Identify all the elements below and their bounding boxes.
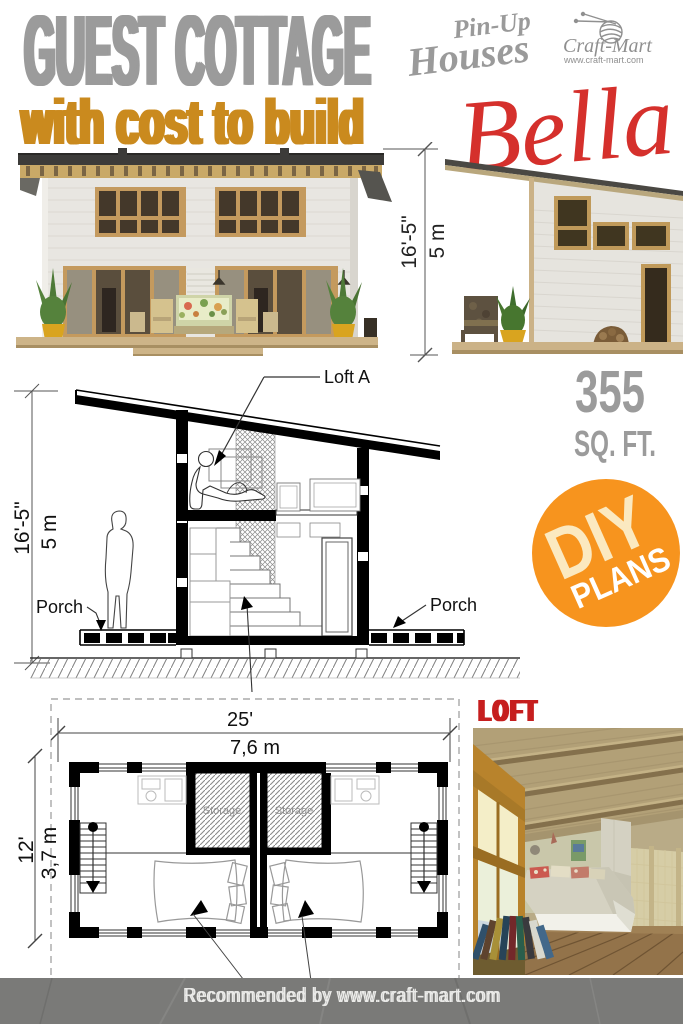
svg-text:355: 355 xyxy=(575,359,645,425)
svg-text:12': 12' xyxy=(15,836,38,863)
svg-text:16'-5": 16'-5" xyxy=(11,501,34,555)
svg-text:Storage: Storage xyxy=(275,805,314,817)
svg-text:3,7 m: 3,7 m xyxy=(38,827,61,880)
svg-text:Craft-Mart: Craft-Mart xyxy=(563,35,652,57)
svg-text:Porch: Porch xyxy=(36,597,83,617)
svg-text:Loft A: Loft A xyxy=(324,367,370,387)
svg-text:16'-5": 16'-5" xyxy=(398,215,421,269)
svg-text:Porch: Porch xyxy=(430,595,477,615)
svg-text:5 m: 5 m xyxy=(38,514,61,549)
svg-text:SQ. FT.: SQ. FT. xyxy=(574,423,656,464)
svg-text:25': 25' xyxy=(227,709,253,731)
svg-text:Storage: Storage xyxy=(203,805,242,817)
svg-text:7,6 m: 7,6 m xyxy=(230,737,280,759)
